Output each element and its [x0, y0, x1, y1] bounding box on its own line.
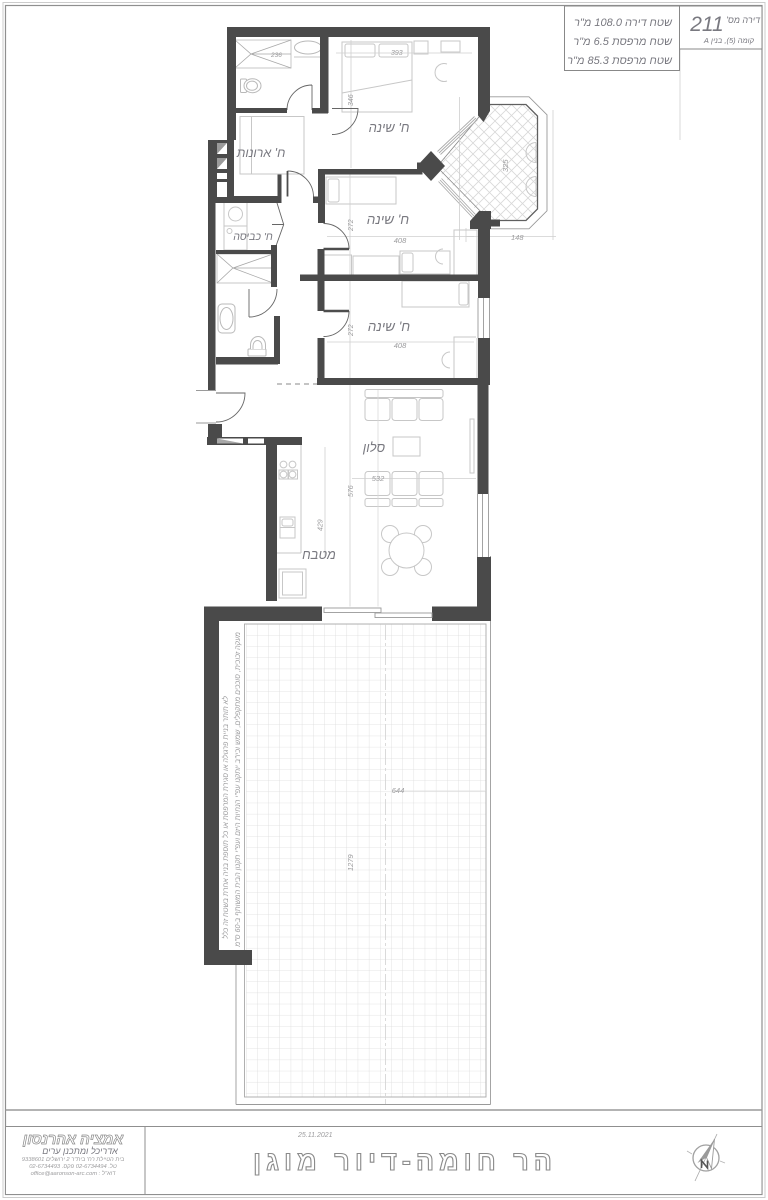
svg-text:148: 148 — [511, 233, 524, 242]
svg-text:429: 429 — [318, 519, 325, 531]
svg-text:532: 532 — [372, 474, 385, 483]
svg-text:שטח דירה 108.0 מ"ר: שטח דירה 108.0 מ"ר — [574, 17, 673, 29]
svg-text:קומה (5), בנין A: קומה (5), בנין A — [703, 36, 755, 45]
svg-text:ח' כביסה: ח' כביסה — [233, 231, 273, 243]
svg-text:1279: 1279 — [346, 853, 355, 871]
svg-text:טל. 02-6734494 פקס. 02-6734493: טל. 02-6734494 פקס. 02-6734493 — [29, 1163, 117, 1170]
svg-text:מעקה זכוכית, סוככים מתקפלים, ש: מעקה זכוכית, סוככים מתקפלים, שמש וכיו"ב … — [233, 632, 242, 948]
svg-text:236: 236 — [270, 52, 282, 59]
svg-text:211: 211 — [689, 13, 723, 36]
svg-text:644: 644 — [392, 786, 405, 795]
svg-text:ח' שינה: ח' שינה — [367, 212, 409, 227]
svg-text:דירה מס': דירה מס' — [726, 15, 761, 25]
svg-text:325: 325 — [501, 159, 510, 172]
svg-text:ח' שינה: ח' שינה — [369, 120, 410, 135]
svg-text:סלון: סלון — [362, 440, 386, 455]
svg-text:הר חומה-דיור מוגן: הר חומה-דיור מוגן — [253, 1146, 557, 1176]
svg-text:מטבח: מטבח — [302, 547, 336, 562]
svg-text:25.11.2021: 25.11.2021 — [297, 1132, 333, 1139]
svg-text:408: 408 — [394, 341, 407, 350]
svg-text:393: 393 — [391, 50, 403, 57]
svg-text:ח' שינה: ח' שינה — [368, 319, 410, 334]
svg-text:272: 272 — [348, 324, 355, 337]
svg-text:דוא"ל : office@aaronson-arc.co: דוא"ל : office@aaronson-arc.com — [31, 1170, 117, 1177]
svg-text:272: 272 — [348, 219, 355, 232]
svg-text:שטח מרפסת 6.5 מ"ר: שטח מרפסת 6.5 מ"ר — [573, 36, 673, 48]
svg-text:408: 408 — [394, 236, 407, 245]
svg-text:שטח מרפסת 85.3 מ"ר: שטח מרפסת 85.3 מ"ר — [567, 55, 673, 67]
svg-text:346: 346 — [348, 94, 355, 106]
svg-text:לא תותר בניית פרגולה או סגירת: לא תותר בניית פרגולה או סגירת המרפסת או … — [221, 696, 230, 939]
svg-text:ח' ארונות: ח' ארונות — [236, 146, 286, 160]
svg-text:אדריכל ומתכנן ערים: אדריכל ומתכנן ערים — [42, 1146, 118, 1156]
svg-text:בית הטיילת רח' בית"ר 2 ירושלים: בית הטיילת רח' בית"ר 2 ירושלים 9338601 — [22, 1156, 125, 1163]
svg-text:576: 576 — [348, 485, 355, 497]
